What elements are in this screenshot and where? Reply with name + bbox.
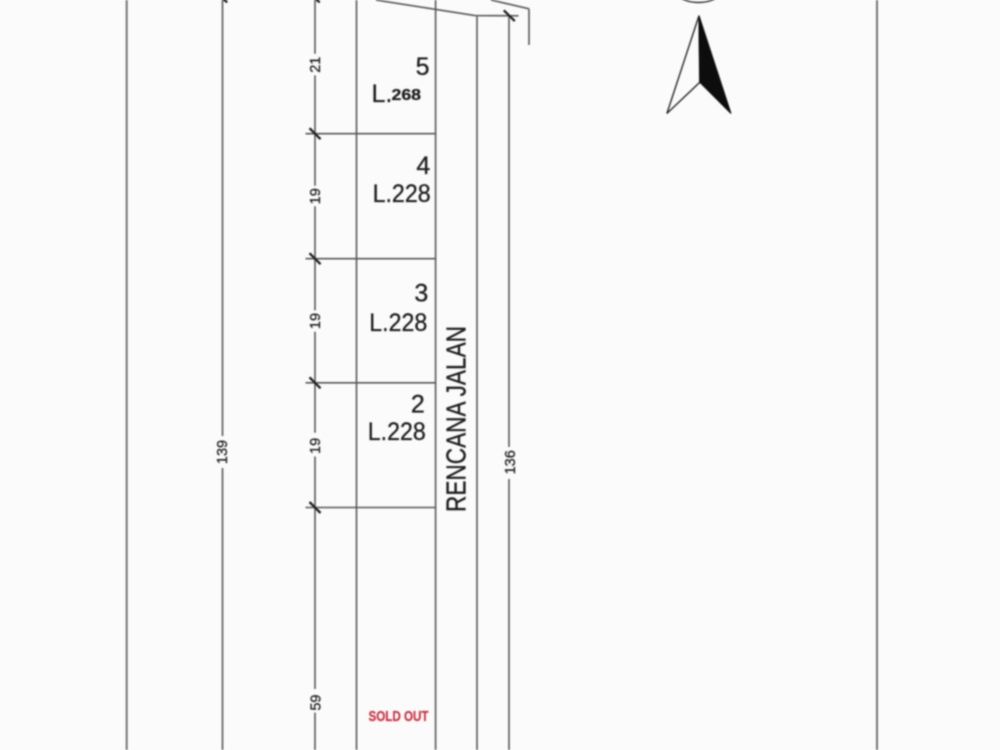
svg-text:19: 19: [308, 313, 324, 329]
svg-text:L.228: L.228: [373, 180, 431, 208]
svg-text:5: 5: [416, 53, 430, 81]
svg-text:59: 59: [308, 695, 324, 711]
svg-text:21: 21: [308, 57, 324, 73]
svg-text:L.: L.: [372, 80, 393, 108]
svg-text:RENCANA JALAN: RENCANA JALAN: [441, 326, 472, 512]
svg-text:3: 3: [414, 280, 428, 308]
svg-text:136: 136: [503, 450, 519, 474]
svg-text:19: 19: [308, 438, 324, 454]
svg-text:139: 139: [215, 440, 231, 464]
svg-text:SOLD OUT: SOLD OUT: [369, 708, 429, 725]
svg-text:268: 268: [392, 87, 422, 104]
svg-text:L.228: L.228: [368, 418, 426, 446]
svg-text:19: 19: [308, 188, 324, 204]
svg-text:L.228: L.228: [369, 309, 427, 337]
svg-text:2: 2: [411, 391, 425, 419]
svg-text:4: 4: [416, 152, 430, 180]
